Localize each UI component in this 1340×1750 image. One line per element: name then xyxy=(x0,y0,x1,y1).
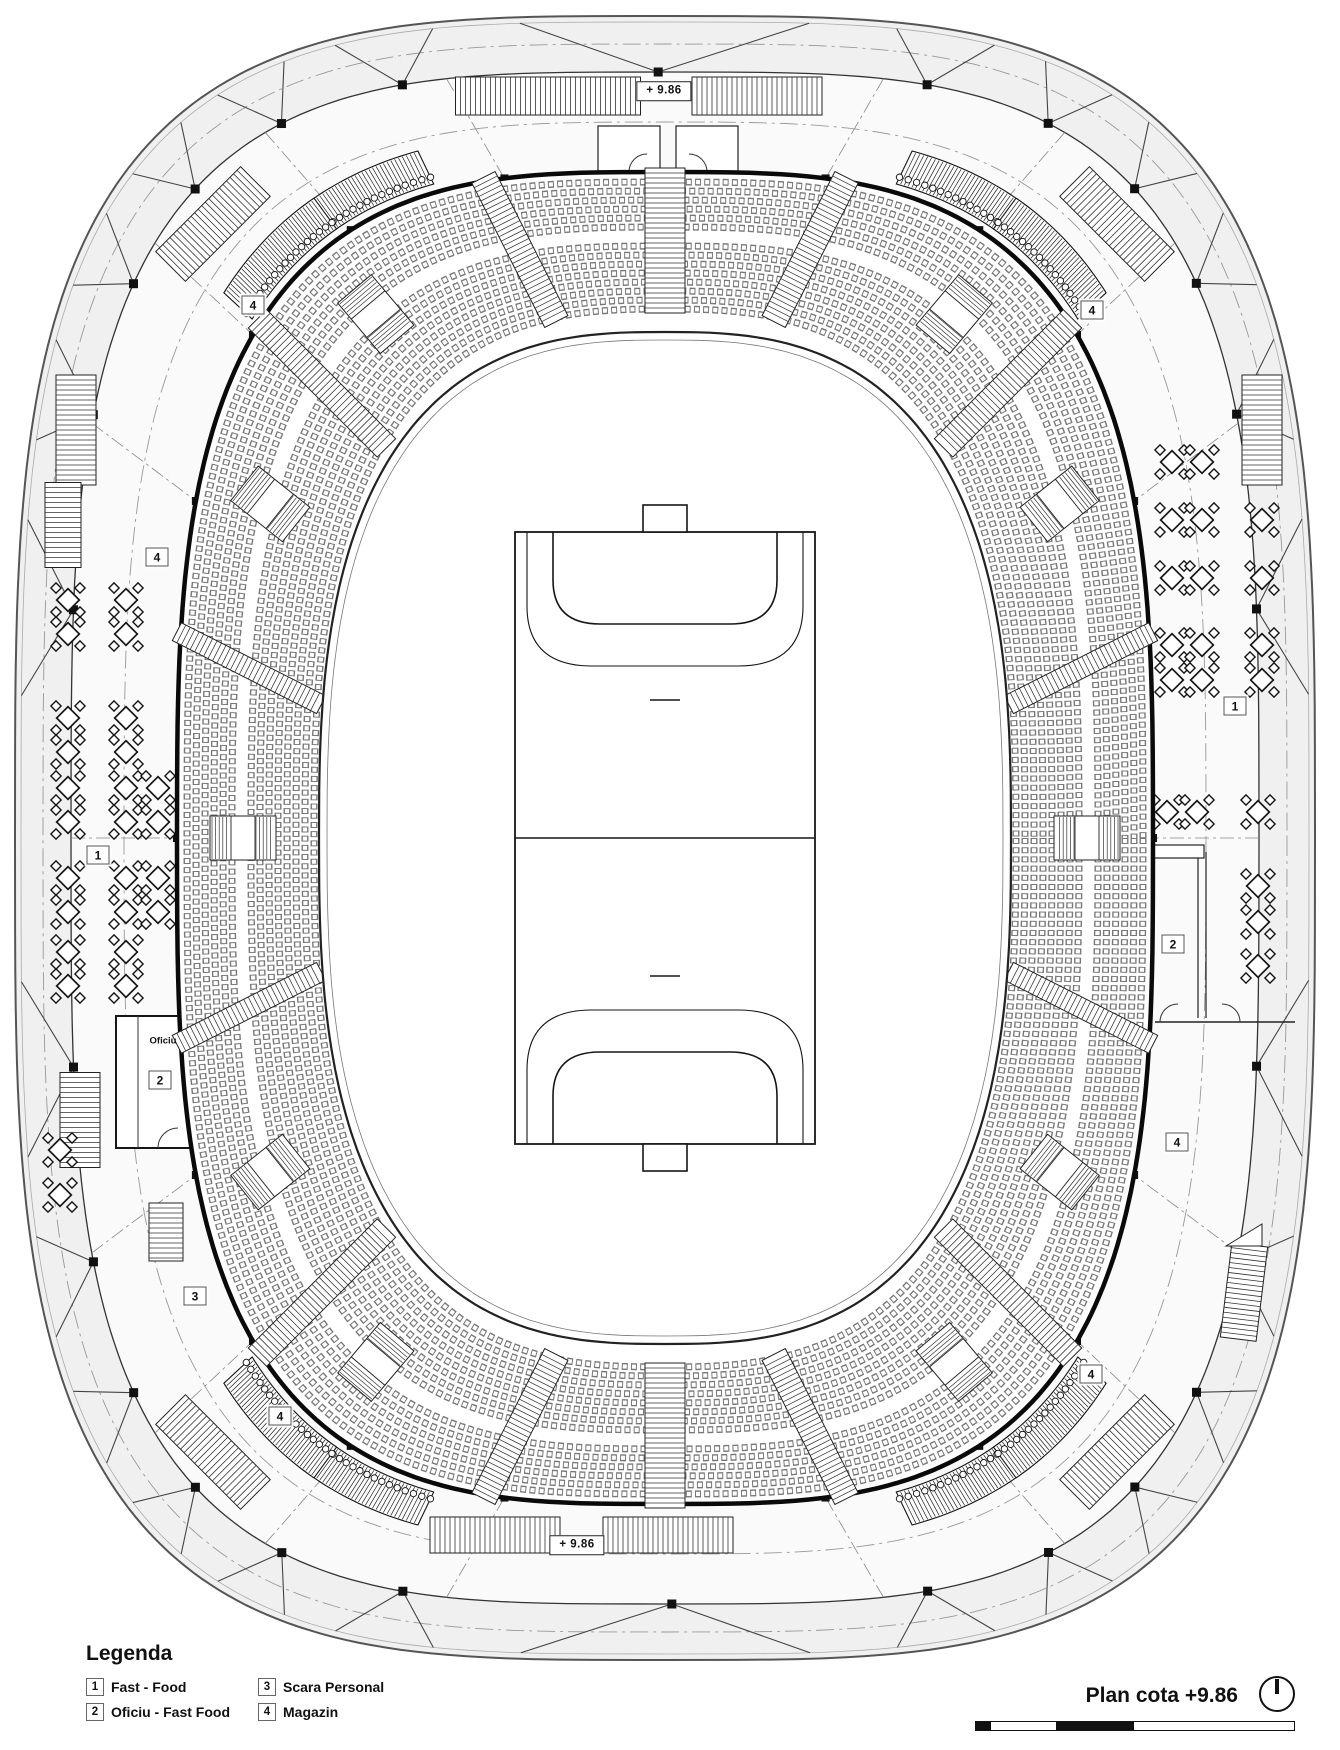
legend-item-fast-food: 1 Fast - Food xyxy=(86,1678,258,1696)
stair-flight xyxy=(56,375,96,485)
scale-segment xyxy=(1134,1722,1294,1730)
stair-flight xyxy=(692,77,822,115)
legend-key-1: 1 xyxy=(86,1678,104,1696)
stair-flight xyxy=(149,1203,183,1261)
marker-oficiu-fast-food: 2 xyxy=(1162,935,1185,954)
marker-magazin: 4 xyxy=(269,1407,292,1426)
north-arrow-icon xyxy=(1259,1676,1295,1712)
plan-title: Plan cota +9.86 xyxy=(988,1684,1238,1708)
scale-bar xyxy=(975,1721,1295,1731)
legend-item-scara-personal: 3 Scara Personal xyxy=(258,1678,384,1696)
scale-segment xyxy=(976,1722,991,1730)
goal-bottom xyxy=(643,1144,687,1171)
elevation-label: + 9.86 xyxy=(636,81,691,101)
marker-magazin: 4 xyxy=(242,296,265,315)
stair-flight xyxy=(456,77,641,115)
legend: Legenda 1 Fast - Food 2 Oficiu - Fast Fo… xyxy=(86,1642,384,1724)
legend-key-3: 3 xyxy=(258,1678,276,1696)
floor-plan-page: Legenda 1 Fast - Food 2 Oficiu - Fast Fo… xyxy=(0,0,1340,1750)
stair-flight xyxy=(1242,375,1282,485)
scale-segment xyxy=(1056,1722,1134,1730)
marker-fast-food: 1 xyxy=(1224,697,1247,716)
marker-magazin: 4 xyxy=(1166,1133,1189,1152)
marker-magazin: 4 xyxy=(1081,301,1104,320)
stair-flight xyxy=(603,1517,733,1553)
floor-plan-drawing xyxy=(0,0,1340,1750)
legend-label-fast-food: Fast - Food xyxy=(111,1679,186,1695)
elevation-label: + 9.86 xyxy=(549,1535,604,1555)
north-needle xyxy=(1275,1679,1279,1694)
marker-fast-food: 1 xyxy=(87,846,110,865)
court xyxy=(515,505,815,1171)
legend-label-magazin: Magazin xyxy=(283,1704,338,1720)
legend-label-oficiu-fast-food: Oficiu - Fast Food xyxy=(111,1704,230,1720)
marker-oficiu-fast-food: 2 xyxy=(149,1071,172,1090)
marker-magazin: 4 xyxy=(146,548,169,567)
room-label-oficiu: Oficiu xyxy=(150,1036,177,1047)
legend-title: Legenda xyxy=(86,1642,384,1666)
marker-magazin: 4 xyxy=(1080,1365,1103,1384)
legend-item-oficiu-fast-food: 2 Oficiu - Fast Food xyxy=(86,1703,258,1721)
legend-item-magazin: 4 Magazin xyxy=(258,1703,384,1721)
stair-flight xyxy=(430,1517,560,1553)
stair-flight xyxy=(45,483,81,568)
vomitory-stair xyxy=(1054,816,1120,860)
marker-scara-personal: 3 xyxy=(184,1287,207,1306)
legend-key-4: 4 xyxy=(258,1703,276,1721)
scale-segment xyxy=(991,1722,1056,1730)
legend-key-2: 2 xyxy=(86,1703,104,1721)
vomitory-stair xyxy=(210,816,276,860)
goal-top xyxy=(643,505,687,532)
legend-label-scara-personal: Scara Personal xyxy=(283,1679,384,1695)
legend-grid: 1 Fast - Food 2 Oficiu - Fast Food 3 Sca… xyxy=(86,1674,384,1724)
